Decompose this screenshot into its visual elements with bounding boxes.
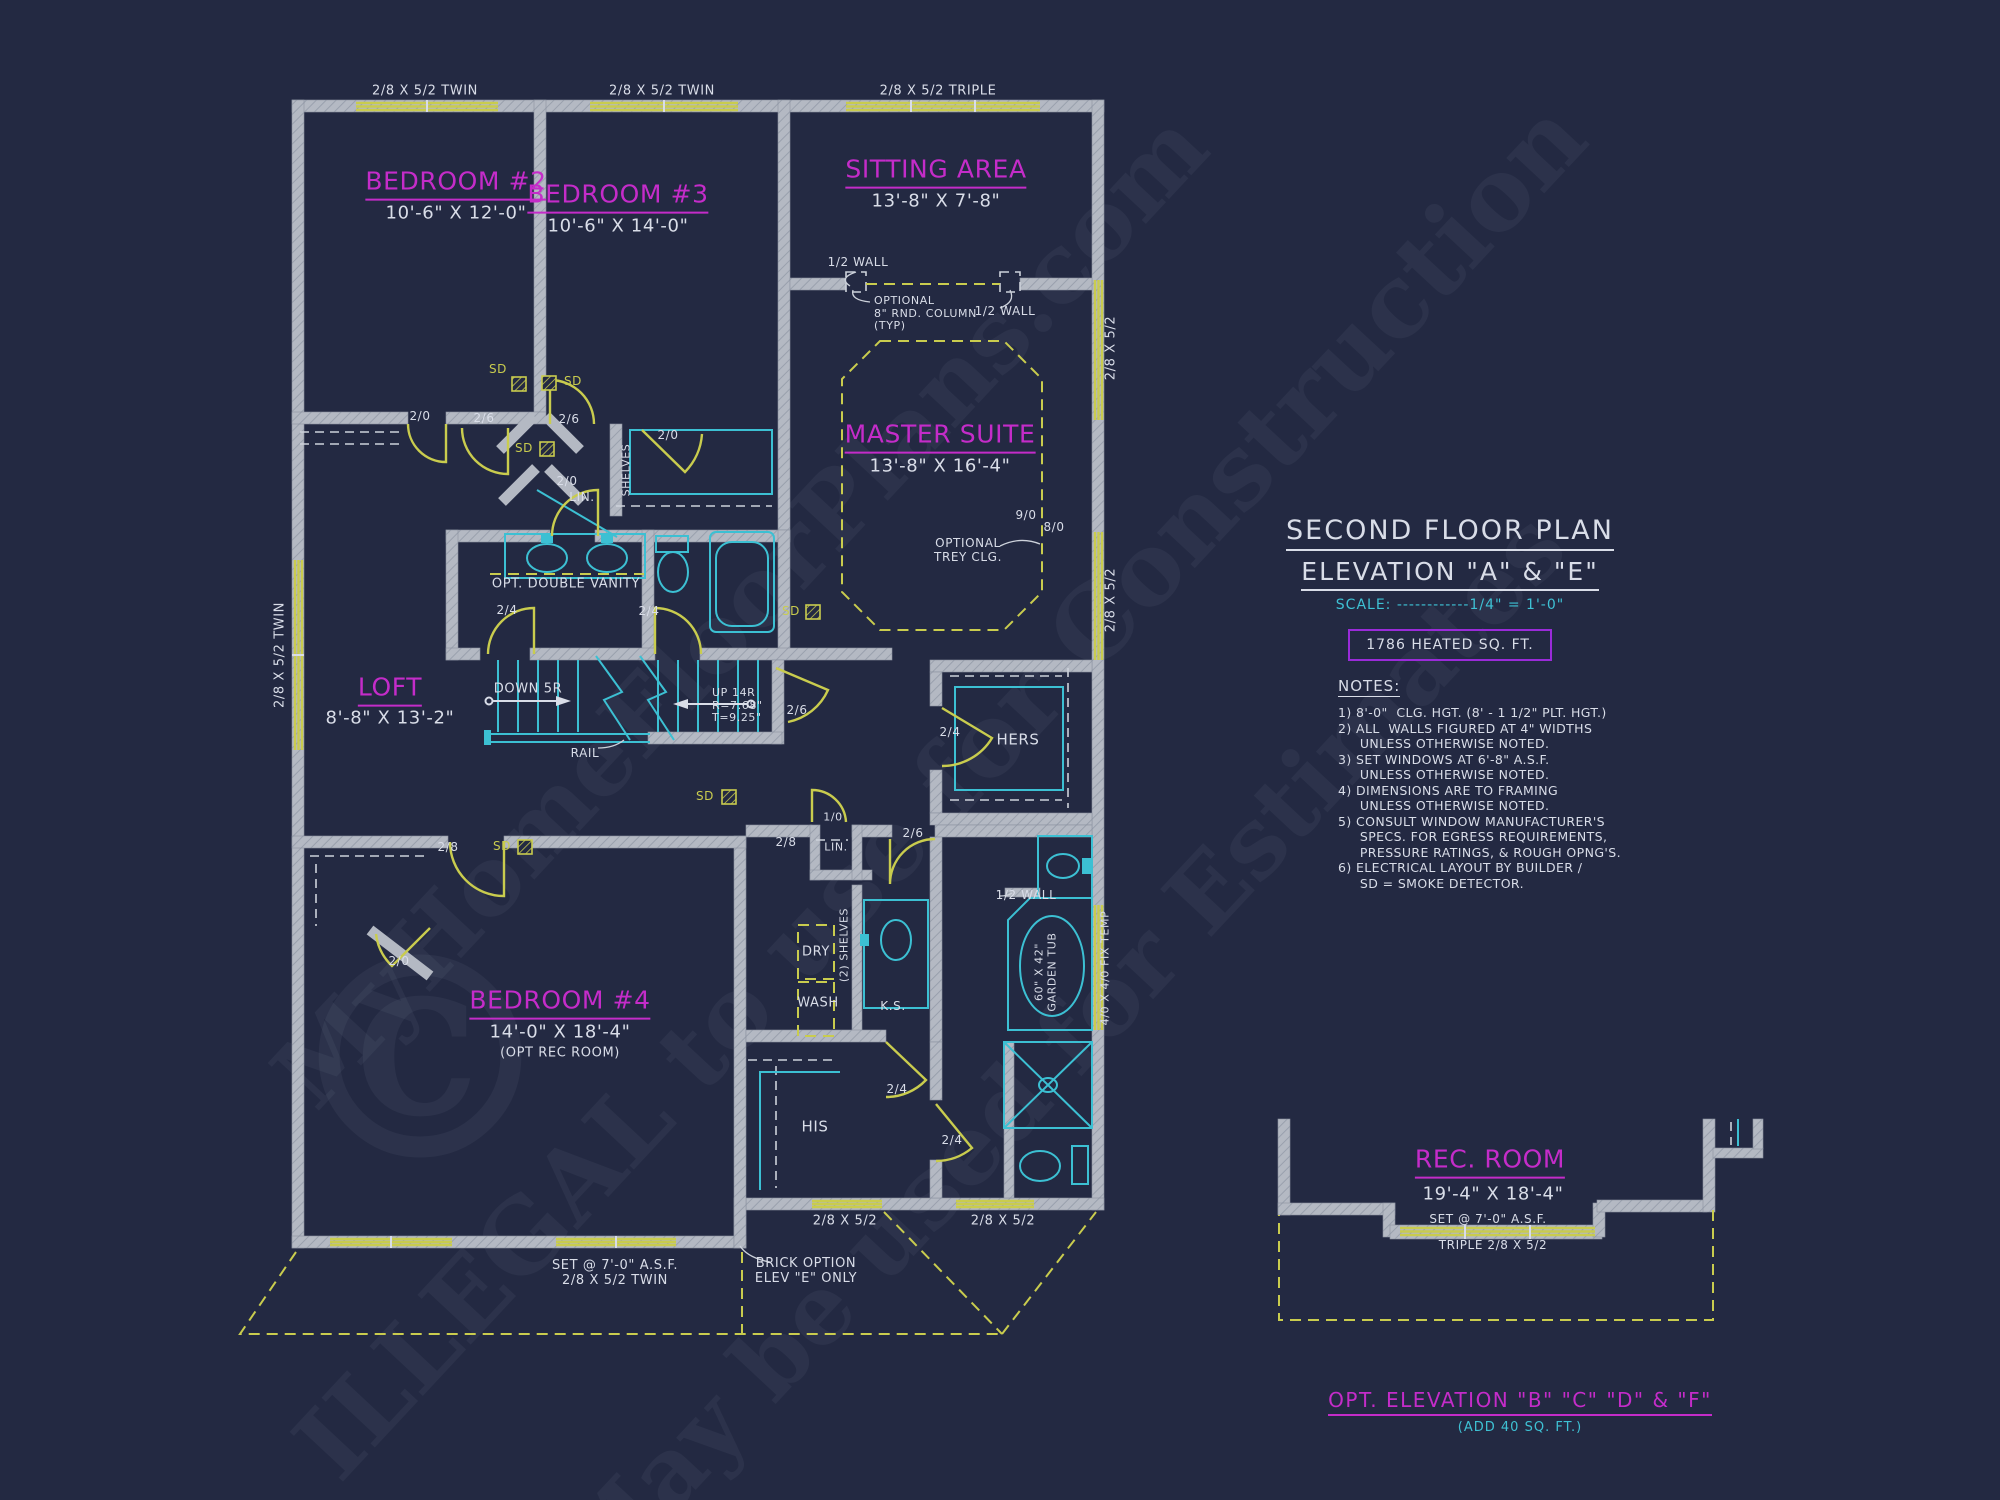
- opt-elevation-subtitle: (ADD 40 SQ. FT.): [1320, 1420, 1720, 1435]
- plan-subtitle: ELEVATION "A" & "E": [1301, 557, 1598, 591]
- note-line: 5) CONSULT WINDOW MANUFACTURER'S: [1338, 814, 1621, 830]
- closet-his-label: HIS: [801, 1118, 828, 1135]
- room-label-loft: LOFT: [358, 674, 422, 707]
- notes-heading: NOTES:: [1338, 677, 1400, 697]
- plan-scale: SCALE: ------------1/4" = 1'-0": [1245, 597, 1655, 613]
- doors: [376, 380, 992, 1161]
- window-label: 2/8 X 5/2 TRIPLE: [880, 85, 997, 100]
- room-label-bedroom3: BEDROOM #3: [527, 181, 708, 214]
- plan-title: SECOND FLOOR PLAN: [1286, 515, 1614, 551]
- shelves-label: SHELVES: [621, 444, 634, 497]
- half-wall-label: 1/2 WALL: [996, 889, 1057, 903]
- smoke-detector-label: SD: [489, 363, 507, 377]
- shelves-label: (2) SHELVES: [839, 908, 852, 982]
- note-line: 3) SET WINDOWS AT 6'-8" A.S.F.: [1338, 752, 1621, 768]
- trey-ceiling-note: OPTIONAL TREY CLG.: [934, 537, 1002, 565]
- floorplan-drawing: [0, 0, 2000, 1500]
- note-line: 2) ALL WALLS FIGURED AT 4" WIDTHS: [1338, 721, 1621, 737]
- door-label: 2/0: [409, 410, 430, 424]
- note-line: UNLESS OTHERWISE NOTED.: [1338, 767, 1621, 783]
- door-label: 2/4: [939, 726, 960, 740]
- opt-elevation-title: OPT. ELEVATION "B" "C" "D" & "F": [1328, 1388, 1712, 1416]
- room-dims-bedroom4: 14'-0" X 18'-4": [490, 1023, 631, 1044]
- brick-option-note: BRICK OPTION ELEV "E" ONLY: [755, 1257, 857, 1287]
- note-line: UNLESS OTHERWISE NOTED.: [1338, 798, 1621, 814]
- door-label: 2/6: [786, 704, 807, 718]
- room-label-master-suite: MASTER SUITE: [845, 421, 1036, 454]
- smoke-detector-label: SD: [493, 840, 511, 854]
- opt-elevation-block: OPT. ELEVATION "B" "C" "D" & "F" (ADD 40…: [1320, 1388, 1720, 1435]
- room-dims-bedroom3: 10'-6" X 14'-0": [548, 217, 689, 238]
- room-dims-loft: 8'-8" X 13'-2": [326, 709, 455, 730]
- heated-sqft-badge: 1786 HEATED SQ. FT.: [1348, 629, 1552, 661]
- half-wall-label: 1/2 WALL: [975, 305, 1036, 319]
- window-note: SET @ 7'-0" A.S.F.: [1429, 1213, 1546, 1227]
- window-label: 4/0 X 4/0 FIX TEMP: [1100, 911, 1113, 1026]
- washer-label: WASH: [797, 997, 838, 1012]
- room-label-bedroom2: BEDROOM #2: [365, 168, 546, 201]
- door-label: 2/4: [638, 605, 659, 619]
- window-label: 2/8 X 5/2: [971, 1215, 1035, 1230]
- door-label: 1/0: [823, 812, 843, 825]
- door-label: 2/0: [657, 429, 678, 443]
- note-line: SPECS. FOR EGRESS REQUIREMENTS,: [1338, 829, 1621, 845]
- note-line: UNLESS OTHERWISE NOTED.: [1338, 736, 1621, 752]
- window-label: 2/8 X 5/2 TWIN: [274, 602, 289, 708]
- note-line: SD = SMOKE DETECTOR.: [1338, 876, 1621, 892]
- linen-label: LIN.: [824, 842, 848, 855]
- door-label: 2/6: [902, 827, 923, 841]
- dryer-label: DRY: [802, 946, 830, 961]
- window-label: 2/8 X 5/2: [1105, 316, 1120, 380]
- blueprint-canvas: MyHomeFloorPlans.comILLEGAL to use for C…: [0, 0, 2000, 1500]
- window-label: 2/8 X 5/2: [1105, 568, 1120, 632]
- room-dims-rec-room: 19'-4" X 18'-4": [1423, 1185, 1564, 1206]
- door-label: 2/0: [556, 475, 577, 489]
- smoke-detector-label: SD: [564, 375, 582, 389]
- column-note: OPTIONAL 8" RND. COLUMN (TYP): [874, 295, 977, 333]
- note-line: PRESSURE RATINGS, & ROUGH OPNG'S.: [1338, 845, 1621, 861]
- room-dims-master-suite: 13'-8" X 16'-4": [870, 457, 1011, 478]
- opening-label: 8/0: [1043, 521, 1064, 535]
- garden-tub-label: 60" X 42" GARDEN TUB: [1033, 932, 1058, 1011]
- door-label: 2/8: [775, 836, 796, 850]
- windows: [292, 100, 1595, 1248]
- window-label: TRIPLE 2/8 X 5/2: [1439, 1239, 1548, 1253]
- door-label: 2/8: [437, 841, 458, 855]
- smoke-detector-label: SD: [782, 605, 800, 619]
- room-label-rec-room: REC. ROOM: [1415, 1146, 1565, 1179]
- notes-block: NOTES: 1) 8'-0" CLG. HGT. (8' - 1 1/2" P…: [1338, 676, 1621, 891]
- window-label: 2/8 X 5/2 TWIN: [609, 85, 715, 100]
- rail-label: RAIL: [571, 747, 600, 761]
- door-label: 2/4: [941, 1134, 962, 1148]
- opening-label: 9/0: [1015, 509, 1036, 523]
- note-line: 1) 8'-0" CLG. HGT. (8' - 1 1/2" PLT. HGT…: [1338, 705, 1621, 721]
- room-dims-bedroom2: 10'-6" X 12'-0": [386, 204, 527, 225]
- linen-label: LIN.: [569, 491, 594, 505]
- room-dims-sitting-area: 13'-8" X 7'-8": [872, 192, 1001, 213]
- door-label: 2/6: [558, 413, 579, 427]
- stair-up-label: UP 14R R=7.68" T=9.25": [712, 687, 763, 725]
- door-label: 2/4: [496, 604, 517, 618]
- room-note-bedroom4: (OPT REC ROOM): [500, 1047, 620, 1062]
- window-label: 2/8 X 5/2: [813, 1215, 877, 1230]
- stair-down-label: DOWN 5R: [494, 683, 562, 698]
- door-label: 2/6: [473, 412, 494, 426]
- door-label: 2/4: [886, 1083, 907, 1097]
- walls: [292, 100, 1763, 1248]
- room-label-bedroom4: BEDROOM #4: [469, 987, 650, 1020]
- room-label-sitting-area: SITTING AREA: [845, 156, 1026, 189]
- notes-list: 1) 8'-0" CLG. HGT. (8' - 1 1/2" PLT. HGT…: [1338, 705, 1621, 891]
- window-note: SET @ 7'-0" A.S.F. 2/8 X 5/2 TWIN: [552, 1259, 678, 1289]
- closet-hers-label: HERS: [996, 731, 1039, 748]
- title-block: SECOND FLOOR PLAN ELEVATION "A" & "E" SC…: [1245, 515, 1655, 661]
- smoke-detector-label: SD: [515, 442, 533, 456]
- door-label: 2/0: [388, 955, 409, 969]
- kitchen-sink-label: K.S.: [880, 1000, 906, 1014]
- window-label: 2/8 X 5/2 TWIN: [372, 85, 478, 100]
- note-line: 6) ELECTRICAL LAYOUT BY BUILDER /: [1338, 860, 1621, 876]
- smoke-detector-label: SD: [696, 790, 714, 804]
- half-wall-label: 1/2 WALL: [828, 256, 889, 270]
- vanity-label: OPT. DOUBLE VANITY: [492, 578, 640, 593]
- note-line: 4) DIMENSIONS ARE TO FRAMING: [1338, 783, 1621, 799]
